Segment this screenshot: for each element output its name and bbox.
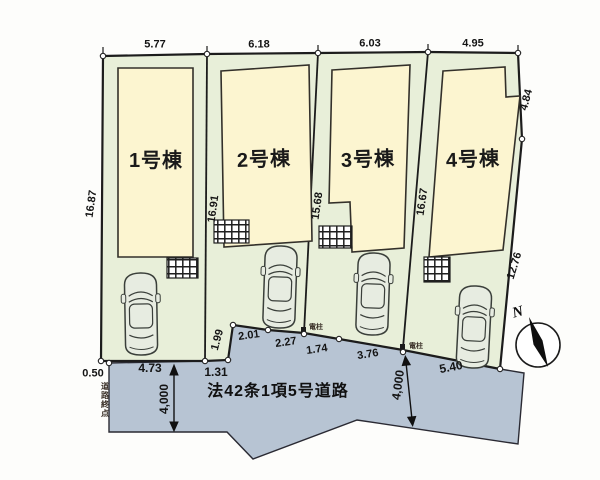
- dim-top-lot4: 4.95: [462, 39, 483, 50]
- utility-pole-dot-2: [400, 344, 405, 349]
- car-1: [121, 273, 161, 356]
- dim-road-width-left: 4,000: [158, 384, 170, 414]
- terrace-hatch-3: [319, 226, 352, 248]
- terrace-hatch-2: [214, 220, 249, 243]
- car-2: [259, 245, 301, 328]
- building-2-label: 2号棟: [237, 149, 292, 171]
- dim-top-lot2: 6.18: [248, 40, 269, 51]
- road-end-label: 道路終点: [100, 382, 111, 418]
- car-4: [452, 285, 495, 369]
- car-3: [352, 252, 394, 335]
- utility-pole-label-2: 電柱: [409, 341, 423, 351]
- building-1-label: 1号棟: [129, 151, 183, 171]
- dim-frontage-131: 1.31: [204, 366, 227, 378]
- site-plan: 5.77 6.18 6.03 4.95 16.87 16.91 15.68 16…: [0, 0, 600, 480]
- building-4-label: 4号棟: [446, 149, 501, 171]
- terrace-hatch-4: [424, 257, 450, 282]
- building-3-label: 3号棟: [341, 149, 396, 171]
- road-name-label: 法42条1項5号道路: [207, 384, 349, 400]
- plan-drawing: [0, 0, 600, 480]
- dim-corner-offset: 0.50: [82, 369, 103, 380]
- dim-top-lot1: 5.77: [144, 40, 165, 51]
- terrace-hatch-1: [167, 258, 198, 278]
- dim-frontage-lot1: 4.73: [138, 362, 161, 374]
- utility-pole-label-1: 電柱: [309, 322, 323, 332]
- dim-top-lot3: 6.03: [359, 39, 380, 50]
